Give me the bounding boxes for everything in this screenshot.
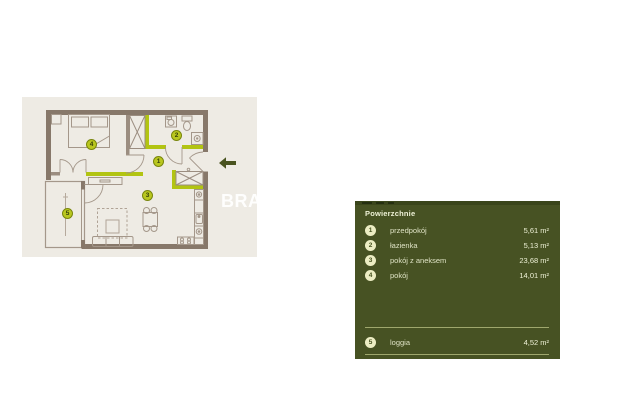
legend-row-pokoj: 4 pokój 14,01 m²	[365, 268, 549, 283]
screenshot-root: 1 2 3 4 5 BRA Powierzchnie 1 przedpokój …	[0, 0, 620, 400]
legend-room-area: 5,61 m²	[524, 226, 549, 235]
legend-room-area: 14,01 m²	[519, 271, 549, 280]
clipped-text-fragment	[388, 202, 394, 204]
legend-row-pokoj-z-aneksem: 3 pokój z aneksem 23,68 m²	[365, 253, 549, 268]
room-marker-3: 3	[142, 190, 153, 201]
legend-room-area: 23,68 m²	[519, 256, 549, 265]
legend-row-loggia: 5 loggia 4,52 m²	[365, 335, 549, 350]
legend-room-label: pokój z aneksem	[390, 256, 519, 265]
entrance-arrow-icon	[219, 156, 236, 170]
bed-icon	[52, 115, 110, 148]
legend-title: Powierzchnie	[365, 209, 415, 218]
legend-divider	[365, 354, 549, 355]
legend-number-badge: 1	[365, 225, 376, 236]
legend-room-label: pokój	[390, 271, 519, 280]
legend-number-badge: 2	[365, 240, 376, 251]
legend-row-lazienka: 2 łazienka 5,13 m²	[365, 238, 549, 253]
clipped-text-fragment	[362, 202, 372, 204]
dining-set-icon	[143, 208, 158, 232]
clipped-text-fragment	[376, 202, 384, 204]
legend-room-area: 4,52 m²	[524, 338, 549, 347]
floor-plan-drawing	[22, 97, 257, 257]
legend-rows: 1 przedpokój 5,61 m² 2 łazienka 5,13 m² …	[365, 223, 549, 283]
legend-room-label: łazienka	[390, 241, 524, 250]
legend-number-badge: 4	[365, 270, 376, 281]
dashed-furniture-icon	[98, 209, 128, 239]
legend-row-przedpokoj: 1 przedpokój 5,61 m²	[365, 223, 549, 238]
legend-panel: Powierzchnie 1 przedpokój 5,61 m² 2 łazi…	[355, 201, 560, 359]
legend-room-area: 5,13 m²	[524, 241, 549, 250]
legend-room-label: przedpokój	[390, 226, 524, 235]
tv-shelf-icon	[89, 178, 123, 185]
legend-room-label: loggia	[390, 338, 524, 347]
room-marker-4: 4	[86, 139, 97, 150]
room-marker-1: 1	[153, 156, 164, 167]
room-marker-5: 5	[62, 208, 73, 219]
legend-row-loggia-wrap: 5 loggia 4,52 m²	[365, 335, 549, 350]
room-marker-2: 2	[171, 130, 182, 141]
legend-divider	[365, 327, 549, 328]
panel-top-strip	[355, 201, 560, 205]
floor-plan-area: 1 2 3 4 5 BRA	[22, 97, 257, 257]
watermark-text: BRA	[221, 191, 257, 212]
legend-number-badge: 5	[365, 337, 376, 348]
legend-number-badge: 3	[365, 255, 376, 266]
bathroom-fixture-icons	[166, 116, 204, 145]
kitchen-icons	[178, 190, 204, 245]
